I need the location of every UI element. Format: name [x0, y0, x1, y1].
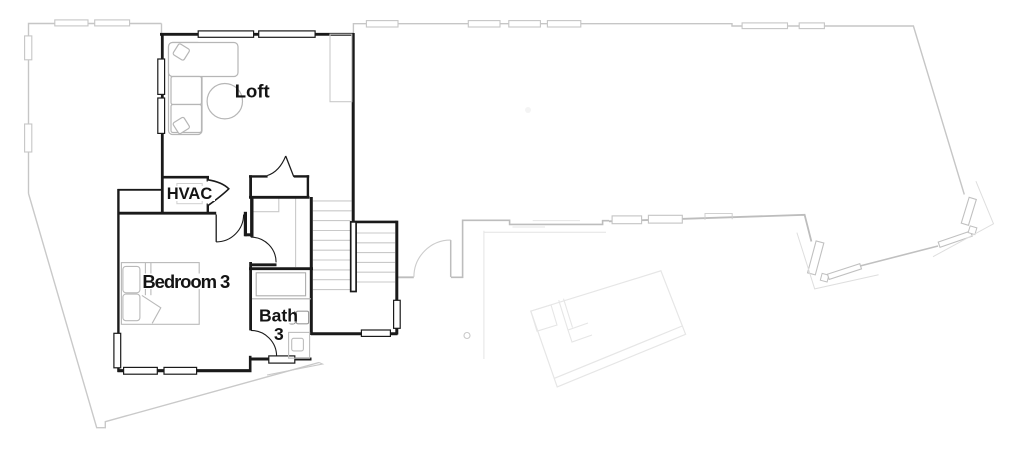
svg-text:Loft: Loft	[235, 80, 270, 101]
svg-text:Bedroom 3: Bedroom 3	[142, 271, 230, 292]
svg-text:3: 3	[274, 324, 284, 344]
svg-text:HVAC: HVAC	[167, 185, 213, 203]
svg-text:Bath: Bath	[259, 306, 298, 326]
